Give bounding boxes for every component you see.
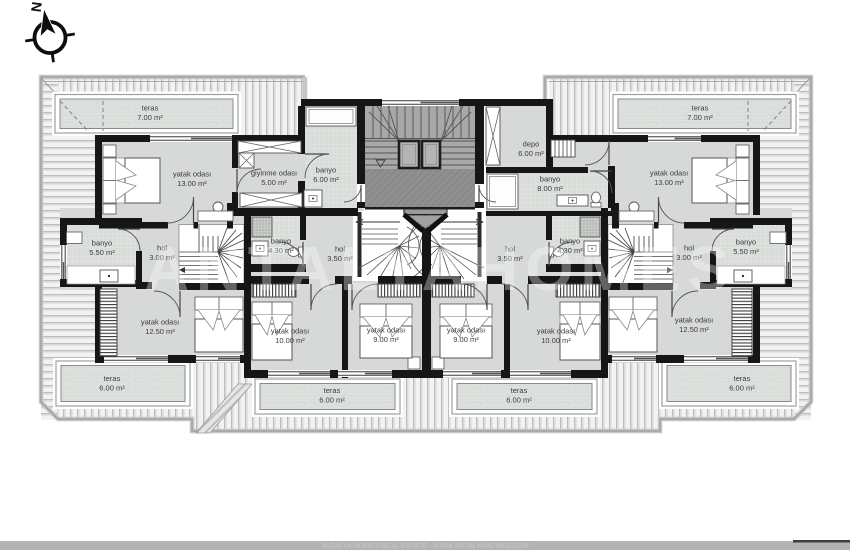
svg-text:ANTALYAHOMES: ANTALYAHOMES: [144, 235, 736, 304]
svg-text:6.00 m²: 6.00 m²: [729, 384, 755, 393]
svg-text:7.00 m²: 7.00 m²: [687, 113, 713, 122]
svg-text:banyo: banyo: [540, 175, 560, 184]
svg-text:5.00 m²: 5.00 m²: [261, 178, 287, 187]
svg-text:teras: teras: [142, 104, 159, 113]
svg-text:yatak odası: yatak odası: [650, 169, 688, 178]
svg-text:depo: depo: [523, 140, 540, 149]
svg-text:10.00 m²: 10.00 m²: [275, 336, 305, 345]
svg-text:teras: teras: [734, 374, 751, 383]
svg-text:8.00 m²: 8.00 m²: [537, 184, 563, 193]
svg-text:teras: teras: [692, 104, 709, 113]
svg-text:9.00 m²: 9.00 m²: [373, 335, 399, 344]
svg-text:6.00 m²: 6.00 m²: [313, 175, 339, 184]
svg-text:N: N: [28, 1, 45, 13]
svg-text:13.00 m²: 13.00 m²: [177, 179, 207, 188]
svg-text:teras: teras: [104, 374, 121, 383]
svg-text:ANTALYA HOMES REAL ESTATE - WW: ANTALYA HOMES REAL ESTATE - WWW.ANTALYAH…: [321, 543, 529, 550]
svg-text:yatak odası: yatak odası: [173, 170, 211, 179]
svg-text:5.50 m²: 5.50 m²: [89, 248, 115, 257]
svg-text:yatak odası: yatak odası: [675, 316, 713, 325]
svg-text:teras: teras: [324, 386, 341, 395]
svg-text:13.00 m²: 13.00 m²: [654, 178, 684, 187]
svg-text:12.50 m²: 12.50 m²: [679, 325, 709, 334]
svg-text:7.00 m²: 7.00 m²: [137, 113, 163, 122]
svg-text:6.00 m²: 6.00 m²: [319, 396, 345, 405]
svg-text:teras: teras: [511, 386, 528, 395]
svg-text:9.00 m²: 9.00 m²: [453, 335, 479, 344]
svg-text:banyo: banyo: [316, 166, 336, 175]
svg-text:banyo: banyo: [736, 238, 756, 247]
svg-text:yatak odası: yatak odası: [141, 318, 179, 327]
svg-text:yatak odası: yatak odası: [537, 327, 575, 336]
svg-text:yatak odası: yatak odası: [271, 327, 309, 336]
svg-text:6.00 m²: 6.00 m²: [518, 149, 544, 158]
svg-text:6.00 m²: 6.00 m²: [506, 396, 532, 405]
svg-text:banyo: banyo: [92, 239, 112, 248]
svg-text:giyinme odası: giyinme odası: [251, 169, 297, 178]
svg-text:10.00 m²: 10.00 m²: [541, 336, 571, 345]
svg-text:yatak odası: yatak odası: [367, 326, 405, 335]
svg-text:6.00 m²: 6.00 m²: [99, 384, 125, 393]
svg-text:12.50 m²: 12.50 m²: [145, 327, 175, 336]
svg-text:5.50 m²: 5.50 m²: [733, 247, 759, 256]
svg-text:yatak odası: yatak odası: [447, 326, 485, 335]
